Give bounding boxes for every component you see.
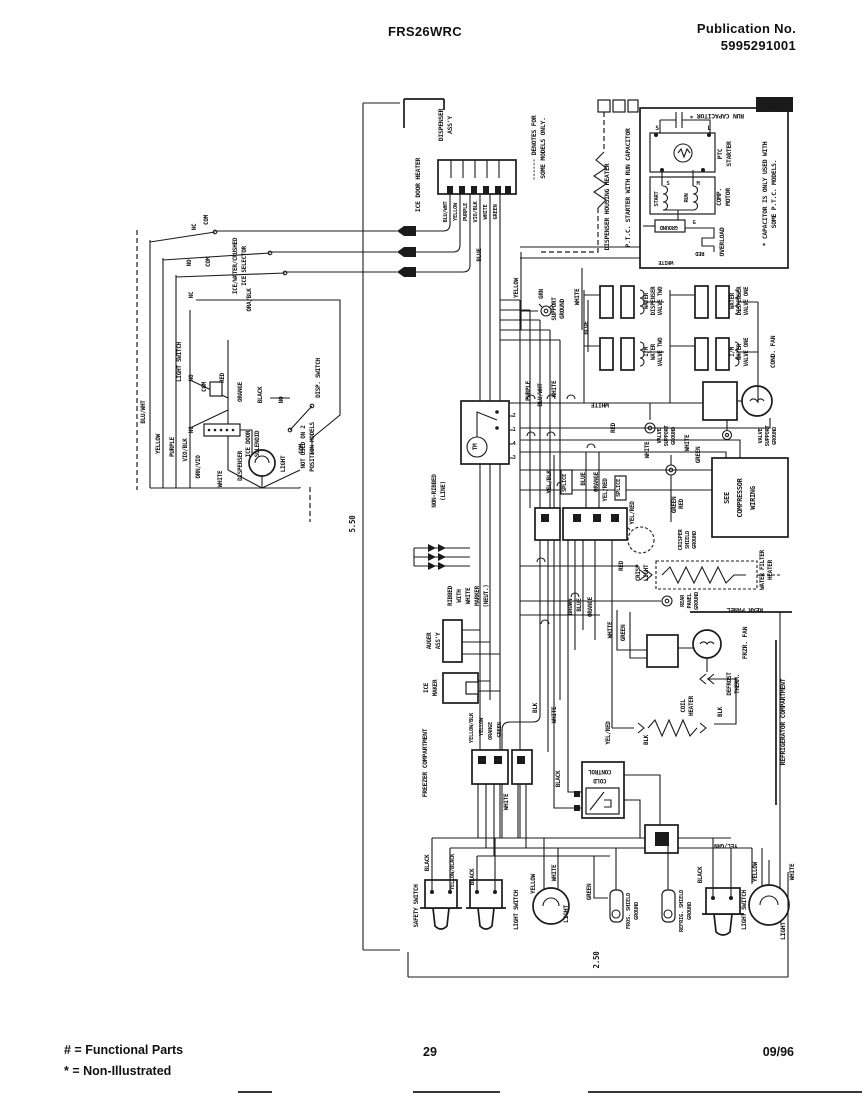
wire-label-96: WITH: [456, 589, 463, 603]
wire-label-99: (NEUT.): [483, 584, 490, 607]
wire-label-122: YEL/RED: [629, 501, 636, 525]
wire-label-92: YELLOW: [479, 717, 485, 736]
wire-label-36: RED: [695, 250, 705, 256]
wire-label-95: RIBBED: [447, 585, 454, 606]
lbl-denotes-2: SOME MODELS ONLY.: [539, 117, 547, 178]
wire-label-31: RUN: [684, 193, 690, 202]
functional-parts-note: # = Functional Parts: [64, 1043, 183, 1057]
wire-label-134: YELLOW/BLACK: [450, 853, 456, 890]
wire-label-49: VALVE TWO: [658, 337, 664, 367]
auger-and-ice-maker: [443, 620, 478, 703]
wire-label-150: WHITE: [789, 863, 796, 880]
wire-label-167: RED: [219, 372, 226, 383]
lbl-frzr-fan: FRZR. FAN: [741, 626, 749, 659]
lbl-ice-door-solenoid-2: SOLENOID: [254, 430, 261, 457]
wire-label-68: SHIELD: [685, 530, 691, 549]
wire-label-155: COM: [205, 256, 212, 267]
wire-label-98: MARKER: [474, 585, 481, 606]
wire-label-30: START: [654, 190, 660, 206]
wire-label-57: VALVE: [758, 428, 764, 443]
wire-label-89: WHITE: [551, 706, 558, 723]
wire-label-152: NC: [191, 223, 198, 230]
wire-label-94: GREEN: [497, 722, 503, 737]
wire-label-73: GROUND: [694, 591, 700, 610]
wire-label-133: BLACK: [424, 854, 431, 871]
bottom-connectors: [472, 750, 532, 856]
wire-label-101: (LINE): [440, 481, 447, 501]
wire-label-54: VALVE: [657, 428, 663, 443]
lbl-diagram-number: 2189612: [764, 103, 783, 109]
lbl-water-filter-2: HEATER: [767, 559, 774, 580]
wire-label-136: BLACK: [469, 868, 476, 885]
wire-label-76: DEFROST: [726, 672, 733, 696]
wire-label-161: NO: [188, 374, 195, 381]
wire-label-6: YELLOW: [453, 202, 459, 221]
wire-label-19: BLUE: [583, 321, 590, 335]
wire-label-121: SPLICE: [616, 479, 622, 497]
wire-label-100: NON-RIBBED: [431, 474, 438, 508]
wire-label-115: RED: [610, 422, 617, 433]
switches-and-lights: [420, 838, 789, 935]
lbl-dim-width: 2.50: [592, 951, 601, 969]
wire-label-58: SUPPORT: [765, 424, 771, 446]
wire-label-127: RED: [618, 560, 625, 571]
lbl-fros-shield-1: FROS. SHIELD: [626, 892, 632, 929]
wire-label-125: GREEN: [695, 446, 702, 463]
wire-label-66: LIGHT: [643, 564, 650, 581]
wire-label-108: 4: [512, 441, 516, 447]
lbl-selector-1: ICE/WATER/CRUSHED: [232, 237, 239, 294]
wire-label-81: BLK: [643, 734, 650, 745]
wire-label-177: PURPLE: [169, 436, 176, 457]
wire-label-130: BROWN: [567, 598, 574, 615]
wire-label-10: GREEN: [493, 204, 499, 219]
lbl-refrig-shield-1: REFRIG. SHIELD: [679, 889, 685, 932]
lbl-cold-control-2: COLD: [593, 777, 607, 784]
wire-label-16: SUPPORT: [551, 297, 558, 321]
wire-label-70: GREEN: [671, 496, 678, 513]
wire-label-113: WHITE: [551, 380, 558, 397]
wire-label-79: HEATER: [688, 695, 695, 716]
wire-label-44: WATER: [730, 292, 736, 309]
wire-label-93: ORANGE: [488, 722, 494, 740]
lbl-ptc-title: P.T.C. STARTER WITH RUN CAPACITOR: [624, 128, 632, 248]
wire-label-141: GREEN: [586, 883, 593, 900]
lbl-cond-fan: COND. FAN: [769, 335, 777, 368]
wire-label-50: I/M: [730, 346, 736, 356]
publication-block: Publication No. 5995291001: [697, 21, 796, 55]
wire-label-156: NC: [188, 291, 195, 298]
wire-label-131: BLUE: [576, 598, 583, 612]
wire-label-90: WHITE: [503, 793, 510, 810]
page-number: 29: [405, 1045, 455, 1059]
lbl-safety-switch: SAFETY SWITCH: [413, 884, 420, 928]
model-number: FRS26WRC: [388, 24, 462, 39]
lbl-capacitor-note-2: SOME P.T.C. MODELS.: [770, 160, 778, 229]
wire-label-47: I/M: [644, 346, 650, 356]
wire-label-88: BLK: [532, 702, 539, 713]
wire-label-112: BLU/WHT: [537, 383, 544, 407]
lbl-fros-shield-2: GROUND: [634, 901, 640, 920]
wire-label-163: NC: [188, 426, 195, 433]
wire-label-87: BLACK: [555, 770, 562, 787]
lbl-disp-light-switch: LIGHT SWITCH: [176, 341, 183, 381]
wire-label-80: BLK: [717, 706, 724, 717]
wire-label-82: YEL/RED: [605, 721, 612, 745]
lbl-not-used-2: POSITION MODELS: [309, 421, 316, 471]
lbl-disp-switch: DISP. SWITCH: [315, 357, 322, 397]
wire-label-77: THERM.: [734, 674, 741, 694]
lbl-timer: TM: [472, 443, 479, 450]
wire-label-18: WHITE: [574, 288, 581, 305]
lbl-cold-control-1: CONTROL: [588, 768, 612, 775]
wire-label-146: BLACK: [697, 866, 704, 883]
lbl-refrig-shield-2: GROUND: [687, 901, 693, 920]
lbl-light-2: LIGHT: [779, 922, 787, 940]
wire-label-109: 3: [512, 455, 515, 461]
lbl-dispenser-housing-heater: DISPENSER HOUSING HEATER: [603, 163, 611, 250]
lbl-light-switch-2: LIGHT SWITCH: [741, 889, 748, 929]
lbl-ice-door-heater: ICE DOOR HEATER: [414, 158, 422, 213]
harness-connectors: [535, 508, 627, 540]
wire-label-162: COM: [201, 381, 208, 392]
wire-label-55: SUPPORT: [664, 424, 670, 446]
wire-label-33: MOTOR: [724, 188, 732, 206]
lbl-disp-light: LIGHT: [280, 455, 287, 472]
wire-label-117: SPLICE: [562, 474, 568, 492]
lbl-capacitor-note-1: * CAPACITOR IS ONLY USED WITH: [761, 141, 769, 246]
wire-label-69: GROUND: [692, 530, 698, 549]
wire-label-139: WHITE: [551, 864, 558, 881]
wire-label-7: PURPLE: [463, 203, 469, 221]
lbl-denotes-1: ------ DENOTES FOR: [530, 115, 538, 180]
wire-label-8: VIO/BLK: [473, 200, 479, 222]
wire-label-23: PTC: [716, 148, 724, 159]
revision-date: 09/96: [763, 1045, 794, 1059]
lbl-ice-maker-1: ICE: [423, 682, 430, 693]
lbl-light-1: LIGHT: [562, 905, 570, 923]
wire-label-153: COM: [203, 214, 210, 225]
lbl-white-flip: WHITE: [591, 401, 609, 409]
wire-label-41: WATER: [644, 292, 650, 309]
defrost-timer: [461, 401, 513, 464]
wire-label-72: PANEL: [687, 592, 693, 608]
lbl-run-capacitor: RUN CAPACITOR *: [690, 112, 745, 120]
publication-label: Publication No.: [697, 21, 796, 38]
lbl-dispenser-assy-1: DISPENSER: [437, 108, 445, 141]
lbl-dispenser-assy-2: ASS'Y: [446, 116, 454, 134]
wire-label-119: ORANGE: [593, 471, 600, 492]
wire-label-106: 2: [512, 413, 515, 419]
wire-label-111: PURPLE: [525, 380, 532, 401]
wire-label-178: VIO/BLK: [182, 438, 189, 462]
wire-label-164: NO: [278, 396, 285, 403]
lbl-auger-1: AUGER: [426, 632, 433, 649]
wire-label-11: BLUE: [476, 248, 483, 262]
wire-label-34: OVERLOAD: [718, 227, 726, 256]
wire-label-97: WHITE: [465, 587, 472, 604]
wire-label-15: GRN: [538, 288, 545, 299]
lbl-see-compressor-2: COMPRESSOR: [736, 477, 744, 517]
wire-label-52: VALVE ONE: [744, 337, 750, 367]
wire-label-128: WHITE: [607, 621, 614, 638]
lbl-see-compressor-3: WIRING: [749, 486, 757, 510]
wire-label-56: GROUND: [671, 426, 677, 445]
lbl-water-filter-1: WATER FILTER: [759, 549, 766, 589]
lbl-selector-2: ICE SELECTOR: [241, 245, 248, 285]
wire-label-169: BLACK: [257, 386, 264, 403]
lbl-rear-panel: REAR PANEL: [727, 606, 764, 614]
wire-label-129: GREEN: [620, 624, 627, 641]
wire-label-159: ORA/BLK: [246, 288, 253, 312]
lbl-not-used-1: NOT USED ON 2: [300, 425, 307, 469]
wire-label-35: GROUND: [659, 224, 678, 230]
wire-label-123: WHITE: [644, 441, 651, 458]
wire-label-67: CRISPER: [678, 528, 684, 550]
freezer-fan: [647, 630, 721, 672]
coil-heater: [638, 720, 706, 736]
wire-label-149: YELLOW: [752, 861, 759, 882]
wire-label-43: VALVE TWO: [658, 286, 664, 316]
wire-label-168: ORANGE: [237, 381, 244, 402]
lbl-yel-grn: YEL/GRN: [714, 842, 738, 849]
wire-label-132: ORANGE: [587, 596, 594, 617]
lbl-auger-2: ASS'Y: [435, 632, 442, 649]
wire-label-78: COIL: [680, 699, 687, 713]
lbl-light-switch-1: LIGHT SWITCH: [513, 889, 520, 929]
wire-label-42: DISPENSER: [651, 286, 657, 316]
wire-label-5: BLU/WHT: [443, 200, 449, 222]
wire-label-24: STARTER: [725, 141, 733, 167]
wire-label-175: BLU/WHT: [140, 400, 147, 424]
wire-label-116: YEL/BLK: [546, 470, 553, 494]
wire-label-46: VALVE ONE: [744, 286, 750, 316]
lbl-refrigerator-compartment: REFRIGERATOR COMPARTMENT: [779, 678, 787, 765]
wire-label-126: RED: [678, 498, 685, 509]
lbl-dispenser: DISPENSER: [237, 450, 244, 480]
wire-label-17: GROUND: [559, 298, 566, 319]
wire-label-9: WHITE: [483, 204, 489, 219]
wire-label-59: GROUND: [772, 426, 778, 445]
wire-label-48: WATER: [651, 343, 657, 360]
wire-label-176: YELLOW: [155, 433, 162, 454]
wire-label-45: DISPENSER: [737, 286, 743, 316]
wire-label-65: CRISP: [635, 564, 642, 581]
wire-label-107: 1: [512, 427, 516, 433]
wire-label-32: COMP.: [715, 188, 723, 206]
wire-label-27: S: [666, 181, 669, 187]
manual-page: 5.502.50ICE DOOR HEATERDISPENSERASS'YBLU…: [0, 0, 864, 1100]
wire-label-154: NO: [186, 259, 193, 266]
wire-label-138: YELLOW: [530, 873, 537, 894]
wire-label-124: WHITE: [684, 434, 691, 451]
wire-label-14: YELLOW: [513, 277, 520, 298]
wire-label-51: WATER: [737, 343, 743, 360]
wire-label-91: YELLOW/BLK: [469, 712, 475, 743]
lbl-dim-height: 5.50: [348, 515, 357, 533]
wire-label-174: WHITE: [217, 470, 224, 487]
wiring-diagram: 5.502.50ICE DOOR HEATERDISPENSERASS'YBLU…: [0, 0, 864, 1100]
lbl-see-compressor-1: SEE: [723, 492, 731, 504]
lbl-ice-door-solenoid-1: ICE DOOR: [245, 430, 252, 457]
wire-label-71: REAR: [680, 594, 686, 607]
wire-label-118: BLUE: [580, 472, 587, 486]
publication-number: 5995291001: [697, 38, 796, 55]
lbl-freezer-compartment: FREEZER COMPARTMENT: [421, 728, 429, 797]
lbl-ice-maker-2: MAKER: [432, 679, 439, 696]
wire-label-179: ORN/VIO: [195, 455, 202, 479]
wire-label-37: WHITE: [658, 259, 673, 265]
non-illustrated-note: * = Non-Illustrated: [64, 1064, 171, 1078]
wire-label-120: YEL/RED: [602, 478, 609, 502]
